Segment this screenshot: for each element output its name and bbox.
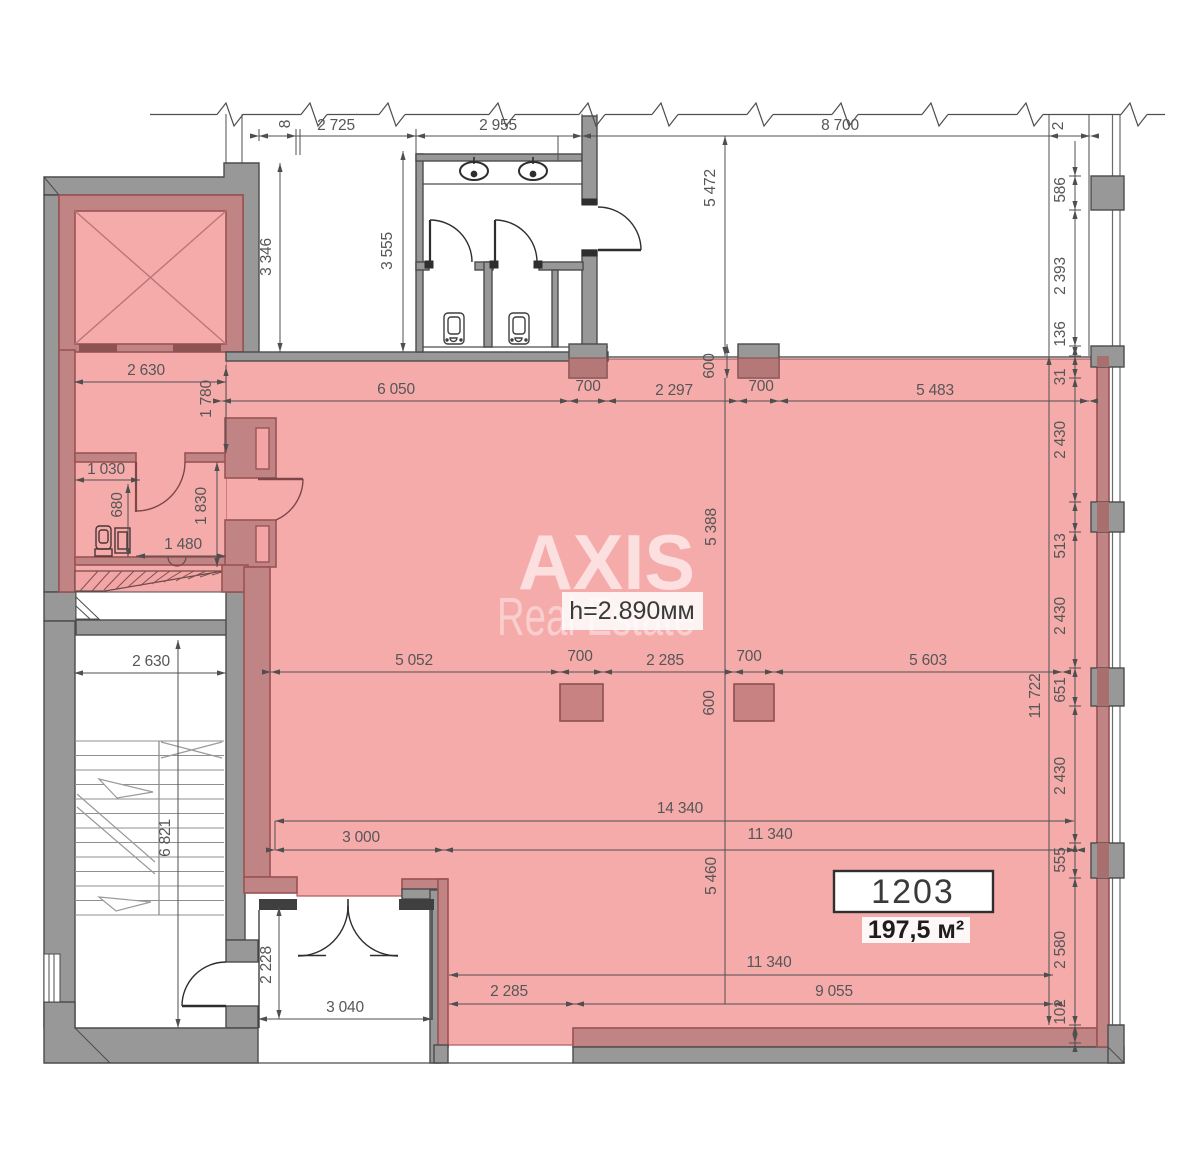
svg-text:8 700: 8 700 (821, 117, 859, 134)
svg-text:513: 513 (1052, 533, 1069, 558)
svg-text:h=2.890мм: h=2.890мм (569, 597, 694, 625)
svg-text:2 285: 2 285 (490, 983, 528, 1000)
svg-text:2 430: 2 430 (1052, 597, 1069, 635)
svg-text:11 340: 11 340 (746, 954, 792, 971)
svg-text:5 388: 5 388 (703, 508, 720, 546)
svg-text:1 030: 1 030 (87, 461, 125, 478)
svg-text:600: 600 (701, 690, 718, 716)
svg-text:136: 136 (1052, 321, 1069, 346)
svg-text:14 340: 14 340 (657, 800, 704, 817)
svg-text:2: 2 (1050, 122, 1067, 130)
svg-text:700: 700 (567, 648, 593, 665)
svg-text:2 285: 2 285 (646, 652, 684, 669)
svg-text:586: 586 (1052, 177, 1069, 202)
svg-text:6 821: 6 821 (157, 819, 174, 857)
svg-text:3 555: 3 555 (379, 232, 396, 270)
svg-text:2 228: 2 228 (258, 946, 275, 984)
svg-text:5 052: 5 052 (395, 652, 433, 669)
svg-text:700: 700 (575, 378, 601, 395)
svg-text:11 722: 11 722 (1027, 673, 1044, 718)
svg-text:3 040: 3 040 (326, 999, 364, 1016)
svg-text:197,5 м²: 197,5 м² (868, 916, 964, 944)
svg-text:9 055: 9 055 (815, 983, 853, 1000)
svg-text:5 460: 5 460 (703, 857, 720, 895)
svg-text:31: 31 (1052, 369, 1069, 386)
svg-text:1 830: 1 830 (193, 487, 210, 525)
svg-text:2 955: 2 955 (479, 117, 517, 134)
svg-text:5 483: 5 483 (916, 382, 954, 399)
svg-text:3 346: 3 346 (258, 238, 275, 276)
svg-text:8: 8 (277, 120, 294, 128)
svg-text:700: 700 (748, 378, 774, 395)
svg-text:1203: 1203 (871, 873, 955, 911)
svg-text:700: 700 (736, 648, 762, 665)
svg-text:2 630: 2 630 (127, 362, 165, 379)
svg-text:651: 651 (1052, 677, 1069, 702)
svg-text:6 050: 6 050 (377, 381, 415, 398)
svg-text:2 430: 2 430 (1052, 757, 1069, 795)
svg-text:5 472: 5 472 (702, 169, 719, 207)
svg-text:2 630: 2 630 (132, 653, 170, 670)
svg-text:555: 555 (1052, 847, 1069, 872)
svg-text:2 725: 2 725 (317, 117, 355, 134)
svg-text:2 297: 2 297 (655, 382, 693, 399)
svg-text:3 000: 3 000 (342, 829, 380, 846)
svg-text:1 780: 1 780 (198, 380, 215, 418)
svg-text:11 340: 11 340 (747, 826, 793, 843)
svg-text:102: 102 (1052, 999, 1069, 1024)
svg-text:600: 600 (701, 353, 718, 379)
svg-text:680: 680 (109, 492, 126, 518)
svg-text:1 480: 1 480 (164, 536, 202, 553)
svg-text:2 393: 2 393 (1052, 257, 1069, 295)
svg-text:2 580: 2 580 (1052, 931, 1069, 969)
svg-text:2 430: 2 430 (1052, 421, 1069, 459)
svg-text:5 603: 5 603 (909, 652, 947, 669)
